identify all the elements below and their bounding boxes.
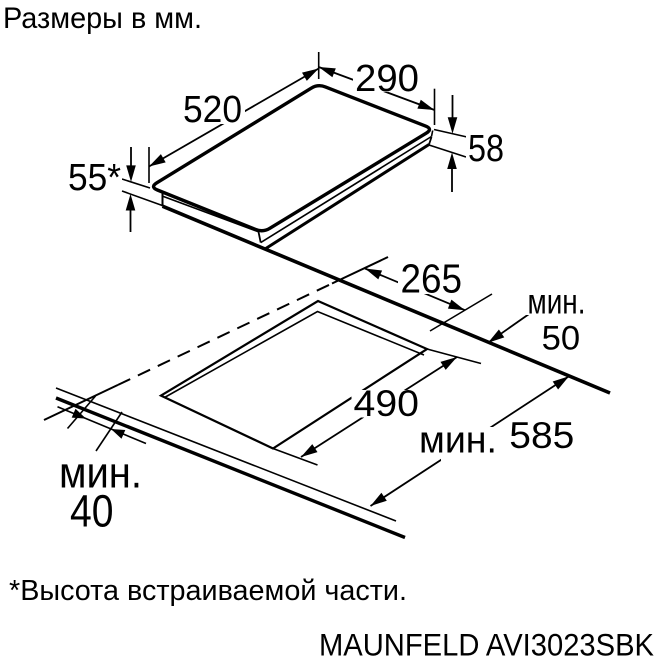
svg-text:265: 265 <box>401 256 463 302</box>
svg-text:55*: 55* <box>68 157 121 199</box>
svg-text:MAUNFELD AVI3023SBK: MAUNFELD AVI3023SBK <box>319 627 654 663</box>
svg-text:50: 50 <box>542 320 581 358</box>
svg-text:мин.: мин. <box>419 420 497 462</box>
svg-text:585: 585 <box>509 415 574 456</box>
svg-text:490: 490 <box>354 383 420 424</box>
svg-text:40: 40 <box>70 486 114 537</box>
svg-text:Размеры в мм.: Размеры в мм. <box>3 2 202 35</box>
svg-text:58: 58 <box>468 128 504 170</box>
svg-text:*Высота встраиваемой части.: *Высота встраиваемой части. <box>9 575 407 607</box>
svg-text:520: 520 <box>183 89 242 131</box>
svg-text:мин.: мин. <box>528 283 586 322</box>
svg-text:290: 290 <box>355 58 419 100</box>
